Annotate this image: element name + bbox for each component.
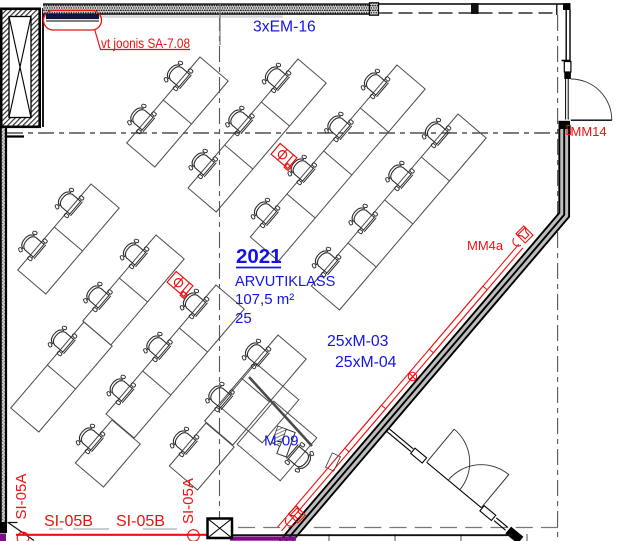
svg-text:2021: 2021 <box>236 245 282 268</box>
svg-text:M-09: M-09 <box>264 433 299 450</box>
svg-text:ARVUTIKLASS: ARVUTIKLASS <box>235 274 336 290</box>
svg-text:SI-05A: SI-05A <box>13 474 30 520</box>
svg-text:SI-05B: SI-05B <box>116 513 165 530</box>
svg-text:SI-05A: SI-05A <box>180 478 197 524</box>
svg-text:3xEM-16: 3xEM-16 <box>253 19 316 36</box>
svg-text:25xM-03: 25xM-03 <box>327 333 389 350</box>
svg-text:107,5 m²: 107,5 m² <box>235 291 294 308</box>
svg-text:25: 25 <box>235 310 252 327</box>
svg-text:MM4a: MM4a <box>467 238 504 253</box>
svg-text:vt joonis SA-7.08: vt joonis SA-7.08 <box>101 36 190 51</box>
svg-text:SI-05B: SI-05B <box>44 513 93 530</box>
svg-text:25xM-04: 25xM-04 <box>335 354 397 371</box>
svg-text:MM14: MM14 <box>571 124 607 139</box>
